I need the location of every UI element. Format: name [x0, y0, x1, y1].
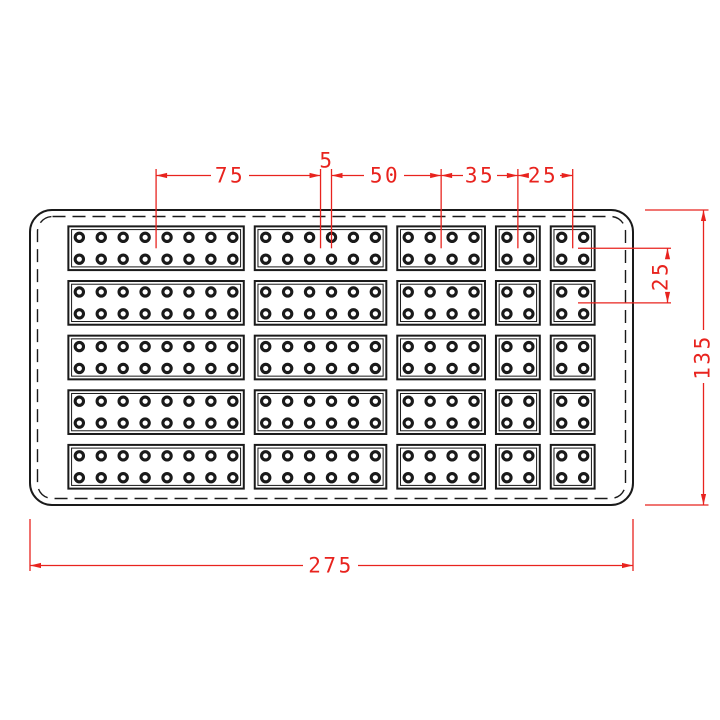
- hole: [426, 233, 434, 241]
- hole: [207, 419, 215, 427]
- dim-label-25: 25: [528, 166, 558, 187]
- hole: [283, 310, 291, 318]
- hole: [503, 474, 511, 482]
- hole: [580, 419, 588, 427]
- hole: [141, 474, 149, 482]
- hole: [97, 364, 105, 372]
- hole: [97, 255, 105, 263]
- hole: [470, 233, 478, 241]
- hole: [558, 342, 566, 350]
- dim-label-275-width: 275: [308, 556, 353, 577]
- hole: [525, 255, 533, 263]
- hole: [119, 419, 127, 427]
- hole: [75, 310, 83, 318]
- hole: [305, 288, 313, 296]
- block-outline: [551, 445, 595, 489]
- hole: [349, 397, 357, 405]
- hole: [558, 255, 566, 263]
- hole: [262, 397, 270, 405]
- hole: [503, 452, 511, 460]
- hole: [141, 419, 149, 427]
- hole: [262, 310, 270, 318]
- hole: [525, 342, 533, 350]
- hole: [283, 233, 291, 241]
- hole: [262, 419, 270, 427]
- hole: [75, 233, 83, 241]
- hole: [558, 288, 566, 296]
- hole: [97, 397, 105, 405]
- hole: [558, 474, 566, 482]
- hole: [327, 419, 335, 427]
- block-outline: [255, 445, 387, 489]
- hole: [207, 474, 215, 482]
- hole: [163, 419, 171, 427]
- hole: [97, 342, 105, 350]
- drawing-canvas: 75 5 50 35 25 25 135 275: [0, 0, 720, 720]
- hole: [75, 419, 83, 427]
- hole: [371, 364, 379, 372]
- dimension-arrowhead: [441, 173, 452, 178]
- hole: [470, 452, 478, 460]
- hole: [229, 288, 237, 296]
- hole: [470, 288, 478, 296]
- hole: [163, 255, 171, 263]
- hole: [97, 288, 105, 296]
- hole: [283, 364, 291, 372]
- hole: [305, 310, 313, 318]
- hole: [119, 288, 127, 296]
- hole: [558, 419, 566, 427]
- hole: [426, 310, 434, 318]
- hole: [185, 419, 193, 427]
- hole: [349, 233, 357, 241]
- hole: [503, 342, 511, 350]
- hole: [229, 452, 237, 460]
- hole: [185, 288, 193, 296]
- hole: [207, 452, 215, 460]
- hole: [119, 397, 127, 405]
- hole: [119, 255, 127, 263]
- hole: [580, 288, 588, 296]
- hole: [426, 452, 434, 460]
- hole: [262, 233, 270, 241]
- hole: [305, 397, 313, 405]
- hole: [75, 342, 83, 350]
- hole: [580, 452, 588, 460]
- hole: [503, 419, 511, 427]
- block-outline: [496, 390, 540, 434]
- hole: [349, 310, 357, 318]
- hole: [404, 288, 412, 296]
- hole: [141, 233, 149, 241]
- hole: [404, 452, 412, 460]
- hole: [305, 233, 313, 241]
- hole: [119, 342, 127, 350]
- hole: [558, 233, 566, 241]
- hole: [163, 397, 171, 405]
- hole: [141, 452, 149, 460]
- hole: [503, 255, 511, 263]
- hole: [371, 342, 379, 350]
- hole: [229, 397, 237, 405]
- hole: [426, 255, 434, 263]
- hole: [327, 452, 335, 460]
- hole: [305, 419, 313, 427]
- hole: [262, 364, 270, 372]
- block-outline: [68, 390, 243, 434]
- hole: [97, 419, 105, 427]
- hole: [207, 288, 215, 296]
- hole: [404, 255, 412, 263]
- hole: [327, 474, 335, 482]
- hole: [525, 288, 533, 296]
- hole: [229, 419, 237, 427]
- hole: [262, 255, 270, 263]
- hole: [229, 255, 237, 263]
- hole: [327, 364, 335, 372]
- hole: [141, 310, 149, 318]
- hole: [580, 474, 588, 482]
- hole: [426, 288, 434, 296]
- hole: [262, 474, 270, 482]
- hole: [119, 474, 127, 482]
- hole: [448, 397, 456, 405]
- dim-label-50: 50: [370, 166, 400, 187]
- hole: [503, 288, 511, 296]
- block-outline: [551, 336, 595, 380]
- hole: [97, 452, 105, 460]
- hole: [163, 233, 171, 241]
- plate-technical-drawing: [0, 0, 720, 720]
- hole: [185, 310, 193, 318]
- hole: [305, 342, 313, 350]
- hole: [229, 342, 237, 350]
- hole: [448, 474, 456, 482]
- hole: [503, 310, 511, 318]
- hole: [349, 255, 357, 263]
- hole: [207, 233, 215, 241]
- hole: [525, 233, 533, 241]
- hole: [470, 364, 478, 372]
- hole: [404, 474, 412, 482]
- hole: [404, 310, 412, 318]
- hole: [119, 310, 127, 318]
- hole: [283, 397, 291, 405]
- hole: [141, 364, 149, 372]
- dimension-arrowhead: [156, 173, 167, 178]
- hole: [349, 342, 357, 350]
- hole: [75, 288, 83, 296]
- hole: [580, 255, 588, 263]
- hole: [327, 397, 335, 405]
- hole: [448, 452, 456, 460]
- hole: [75, 364, 83, 372]
- block-outline: [551, 390, 595, 434]
- hole: [75, 474, 83, 482]
- hole: [283, 452, 291, 460]
- hole: [448, 288, 456, 296]
- hole: [470, 419, 478, 427]
- hole: [470, 342, 478, 350]
- dimension-arrowhead: [430, 173, 441, 178]
- hole: [185, 397, 193, 405]
- hole: [470, 310, 478, 318]
- hole: [262, 342, 270, 350]
- hole: [525, 310, 533, 318]
- hole: [448, 310, 456, 318]
- hole: [207, 364, 215, 372]
- hole: [283, 342, 291, 350]
- hole: [305, 474, 313, 482]
- hole: [75, 255, 83, 263]
- hole: [349, 474, 357, 482]
- hole: [371, 452, 379, 460]
- hole: [404, 397, 412, 405]
- dimension-arrowhead: [562, 173, 573, 178]
- hole: [119, 364, 127, 372]
- hole: [305, 364, 313, 372]
- dim-label-25-row-pitch: 25: [651, 261, 672, 291]
- hole: [262, 452, 270, 460]
- hole: [580, 397, 588, 405]
- dimension-arrowhead: [701, 494, 706, 505]
- hole: [305, 452, 313, 460]
- hole: [558, 452, 566, 460]
- hole: [426, 474, 434, 482]
- hole: [371, 310, 379, 318]
- hole: [404, 364, 412, 372]
- hole: [163, 364, 171, 372]
- hole: [371, 397, 379, 405]
- hole: [558, 364, 566, 372]
- hole: [327, 288, 335, 296]
- hole: [97, 474, 105, 482]
- hole: [371, 255, 379, 263]
- block-outline: [255, 390, 387, 434]
- hole: [97, 310, 105, 318]
- hole: [404, 419, 412, 427]
- hole: [448, 419, 456, 427]
- hole: [349, 364, 357, 372]
- hole: [371, 288, 379, 296]
- hole: [349, 419, 357, 427]
- hole: [207, 397, 215, 405]
- hole: [558, 397, 566, 405]
- hole: [525, 474, 533, 482]
- hole: [470, 474, 478, 482]
- hole: [141, 288, 149, 296]
- hole: [229, 364, 237, 372]
- block-outline: [496, 445, 540, 489]
- hole: [163, 310, 171, 318]
- hole: [426, 342, 434, 350]
- hole: [327, 342, 335, 350]
- hole: [448, 233, 456, 241]
- dim-label-135-height: 135: [693, 334, 714, 379]
- hole: [262, 288, 270, 296]
- dimension-arrowhead: [665, 292, 670, 303]
- hole: [580, 342, 588, 350]
- dimension-arrowhead: [665, 248, 670, 259]
- hole: [327, 310, 335, 318]
- hole: [525, 419, 533, 427]
- hole: [448, 364, 456, 372]
- hole: [207, 310, 215, 318]
- hole: [185, 452, 193, 460]
- dimension-arrowhead: [310, 173, 321, 178]
- hole: [185, 364, 193, 372]
- dimension-arrowhead: [507, 173, 518, 178]
- hole: [503, 397, 511, 405]
- hole: [97, 233, 105, 241]
- hole: [580, 233, 588, 241]
- hole: [229, 310, 237, 318]
- hole: [207, 342, 215, 350]
- hole: [163, 342, 171, 350]
- hole: [558, 310, 566, 318]
- hole: [448, 342, 456, 350]
- hole: [229, 233, 237, 241]
- hole: [283, 474, 291, 482]
- hole: [185, 255, 193, 263]
- hole: [503, 364, 511, 372]
- hole: [327, 255, 335, 263]
- hole: [119, 233, 127, 241]
- hole: [163, 288, 171, 296]
- hole: [404, 233, 412, 241]
- hole: [349, 452, 357, 460]
- hole: [580, 310, 588, 318]
- hole: [371, 474, 379, 482]
- hole: [349, 288, 357, 296]
- hole: [503, 233, 511, 241]
- hole: [141, 342, 149, 350]
- hole: [163, 452, 171, 460]
- hole: [525, 364, 533, 372]
- hole: [185, 233, 193, 241]
- dimension-arrowhead: [622, 563, 633, 568]
- hole: [525, 452, 533, 460]
- hole: [141, 255, 149, 263]
- hole: [185, 342, 193, 350]
- hole: [404, 342, 412, 350]
- hole: [163, 474, 171, 482]
- hole: [283, 288, 291, 296]
- hole: [470, 397, 478, 405]
- hole: [580, 364, 588, 372]
- block-outline: [496, 336, 540, 380]
- block-outline: [68, 336, 243, 380]
- hole: [119, 452, 127, 460]
- block-outline: [68, 445, 243, 489]
- hole: [371, 233, 379, 241]
- dim-label-35: 35: [465, 166, 495, 187]
- dimension-arrowhead: [30, 563, 41, 568]
- block-outline: [68, 281, 243, 325]
- hole: [229, 474, 237, 482]
- hole: [426, 364, 434, 372]
- dim-label-5: 5: [319, 151, 334, 172]
- block-outline: [255, 336, 387, 380]
- dimension-arrowhead: [332, 173, 343, 178]
- hole: [371, 419, 379, 427]
- hole: [141, 397, 149, 405]
- hole: [305, 255, 313, 263]
- hole: [207, 255, 215, 263]
- dim-label-75: 75: [215, 166, 245, 187]
- hole: [283, 255, 291, 263]
- hole: [525, 397, 533, 405]
- block-outline: [496, 281, 540, 325]
- block-outline: [255, 281, 387, 325]
- hole: [448, 255, 456, 263]
- hole: [75, 452, 83, 460]
- hole: [426, 397, 434, 405]
- hole: [283, 419, 291, 427]
- hole: [75, 397, 83, 405]
- dimension-arrowhead: [701, 210, 706, 221]
- hole: [185, 474, 193, 482]
- hole: [426, 419, 434, 427]
- hole: [470, 255, 478, 263]
